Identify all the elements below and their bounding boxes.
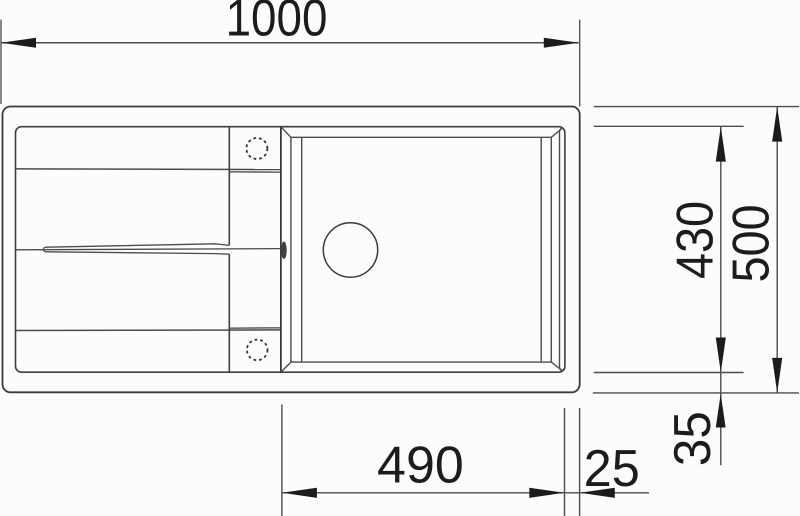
svg-text:25: 25 [584, 439, 640, 497]
svg-text:490: 490 [377, 436, 464, 494]
svg-text:430: 430 [666, 201, 724, 279]
svg-text:500: 500 [722, 204, 780, 282]
svg-text:1000: 1000 [226, 0, 328, 47]
svg-text:35: 35 [663, 411, 721, 466]
